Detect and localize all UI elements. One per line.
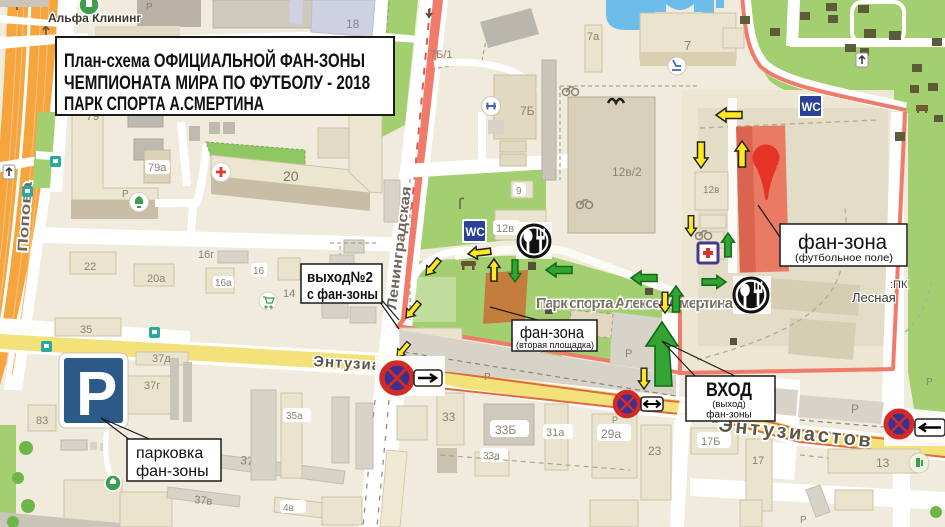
svg-text:P: P (625, 348, 632, 360)
svg-text:WC: WC (466, 227, 485, 239)
svg-text:16г: 16г (198, 249, 214, 261)
svg-text:фан-зоны: фан-зоны (136, 463, 209, 480)
svg-text:с фан-зоны: с фан-зоны (307, 286, 378, 303)
svg-text:83: 83 (36, 415, 48, 427)
svg-text:(вторая площадка): (вторая площадка) (516, 340, 594, 351)
svg-text:Лесная: Лесная (852, 290, 896, 305)
svg-text:35: 35 (80, 324, 92, 336)
svg-text:16а: 16а (215, 278, 232, 289)
svg-text::ПК: :ПК (890, 279, 908, 291)
svg-text:37д: 37д (152, 353, 171, 365)
svg-text:P: P (122, 189, 129, 200)
svg-text:7: 7 (684, 38, 691, 53)
svg-text:31а: 31а (546, 427, 565, 439)
svg-text:ПАРК СПОРТА А.СМЕРТИНА: ПАРК СПОРТА А.СМЕРТИНА (64, 94, 264, 115)
svg-text:14: 14 (283, 288, 295, 300)
svg-text:37в: 37в (194, 494, 213, 508)
svg-text:33: 33 (442, 410, 456, 424)
svg-text:P: P (146, 2, 153, 13)
svg-text:7а: 7а (587, 31, 600, 43)
svg-text:20а: 20а (147, 273, 166, 285)
svg-text:17Б: 17Б (701, 436, 720, 448)
svg-text:План-схема ОФИЦИАЛЬНОЙ ФАН-ЗОН: План-схема ОФИЦИАЛЬНОЙ ФАН-ЗОНЫ (64, 50, 365, 72)
svg-text:ВХОД: ВХОД (706, 380, 752, 401)
svg-text:12в: 12в (703, 185, 719, 196)
svg-text:16: 16 (253, 266, 265, 277)
svg-text:13: 13 (876, 456, 890, 470)
svg-text:парковка: парковка (136, 445, 203, 462)
svg-text:37г: 37г (144, 380, 160, 392)
svg-text:18: 18 (346, 17, 360, 31)
svg-text:WC: WC (802, 102, 821, 114)
svg-text:Парк спорта Алексея Смертина: Парк спорта Алексея Смертина (536, 295, 734, 312)
svg-text:22: 22 (84, 261, 96, 273)
svg-text:фан-зоны: фан-зоны (706, 409, 751, 421)
svg-text:9: 9 (516, 186, 522, 197)
svg-text:(выход): (выход) (712, 399, 745, 410)
svg-text:P: P (800, 515, 807, 526)
svg-text:фан-зона: фан-зона (798, 231, 887, 254)
svg-text:33Б: 33Б (495, 423, 516, 437)
svg-text:12в/2: 12в/2 (612, 165, 642, 179)
svg-text:35а: 35а (286, 411, 303, 422)
svg-text:P: P (926, 377, 933, 388)
svg-text:20: 20 (283, 168, 299, 184)
svg-text:7Б: 7Б (520, 104, 535, 118)
svg-text:выход№2: выход№2 (307, 269, 373, 286)
svg-text:12в: 12в (496, 223, 514, 235)
svg-text:17: 17 (752, 455, 764, 467)
svg-text:P: P (851, 402, 859, 416)
svg-text:79а: 79а (148, 162, 167, 174)
svg-text:4в: 4в (283, 503, 294, 514)
svg-text:29а: 29а (601, 427, 621, 441)
svg-text:(футбольное поле): (футбольное поле) (795, 252, 893, 264)
svg-text:P: P (76, 360, 117, 429)
svg-text:23: 23 (648, 444, 662, 458)
svg-text:ЧЕМПИОНАТА МИРА ПО ФУТБОЛУ - 2: ЧЕМПИОНАТА МИРА ПО ФУТБОЛУ - 2018 (64, 73, 370, 94)
svg-text:33а: 33а (483, 451, 500, 462)
svg-text:P: P (612, 415, 618, 425)
svg-text:P: P (484, 372, 491, 383)
